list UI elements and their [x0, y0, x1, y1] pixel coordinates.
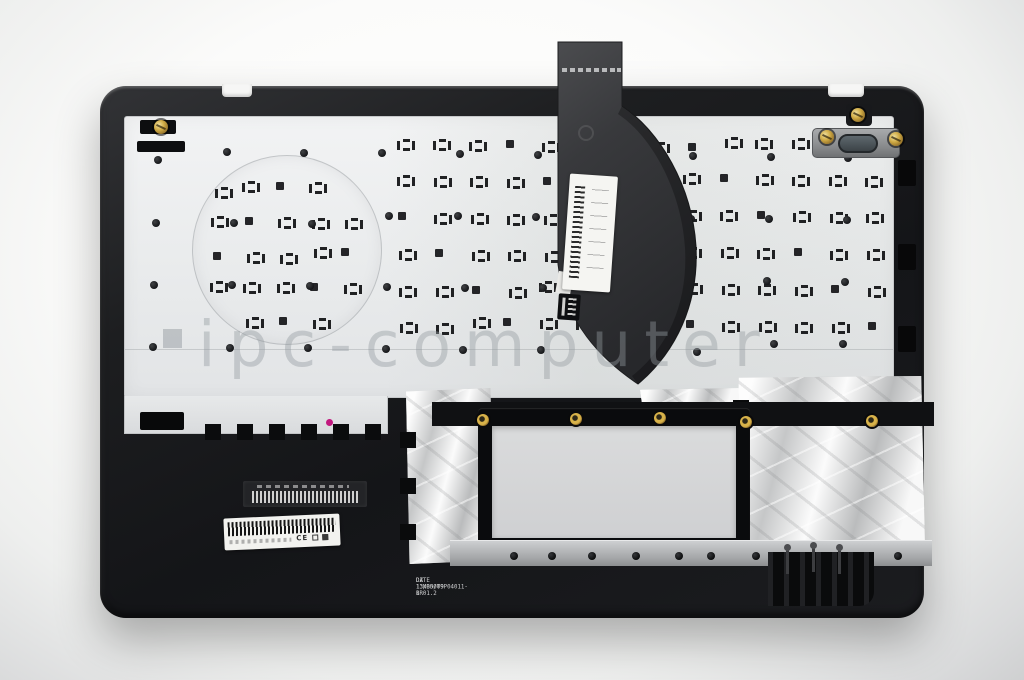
compliance-mark-icon [312, 534, 318, 540]
label-microtext [229, 538, 291, 545]
barcode [569, 186, 585, 278]
watermark-square [163, 329, 182, 348]
barcode [228, 518, 337, 537]
watermark-text: ipc-computer [198, 304, 773, 386]
compliance-mark-icon [322, 534, 328, 540]
strip-screw [707, 552, 715, 560]
connector-rib-area [768, 552, 874, 606]
cable-barcode-label [562, 173, 618, 292]
product-photo-keyboard-topcase: CE DZ 13NB00T9P04011-1R DATE 13/05/09 B … [0, 0, 1024, 680]
barcode [252, 491, 358, 503]
strip-screw [752, 552, 760, 560]
connector-pin [786, 548, 789, 574]
strip-screw [675, 552, 683, 560]
inner-barcode-label [243, 481, 367, 507]
connector-pin [838, 548, 841, 574]
date-code-line: DATE 13/05/09 B 01.2 [416, 577, 444, 597]
label-microtext [257, 485, 349, 488]
strip-screw [894, 552, 902, 560]
strip-screw [548, 552, 556, 560]
strip-screw [632, 552, 640, 560]
connector-pin [812, 546, 815, 572]
strip-screw [510, 552, 518, 560]
strip-screw [588, 552, 596, 560]
white-barcode-label: CE [223, 513, 340, 550]
ce-mark-icon: CE [296, 534, 308, 543]
label-microtext [586, 189, 609, 280]
